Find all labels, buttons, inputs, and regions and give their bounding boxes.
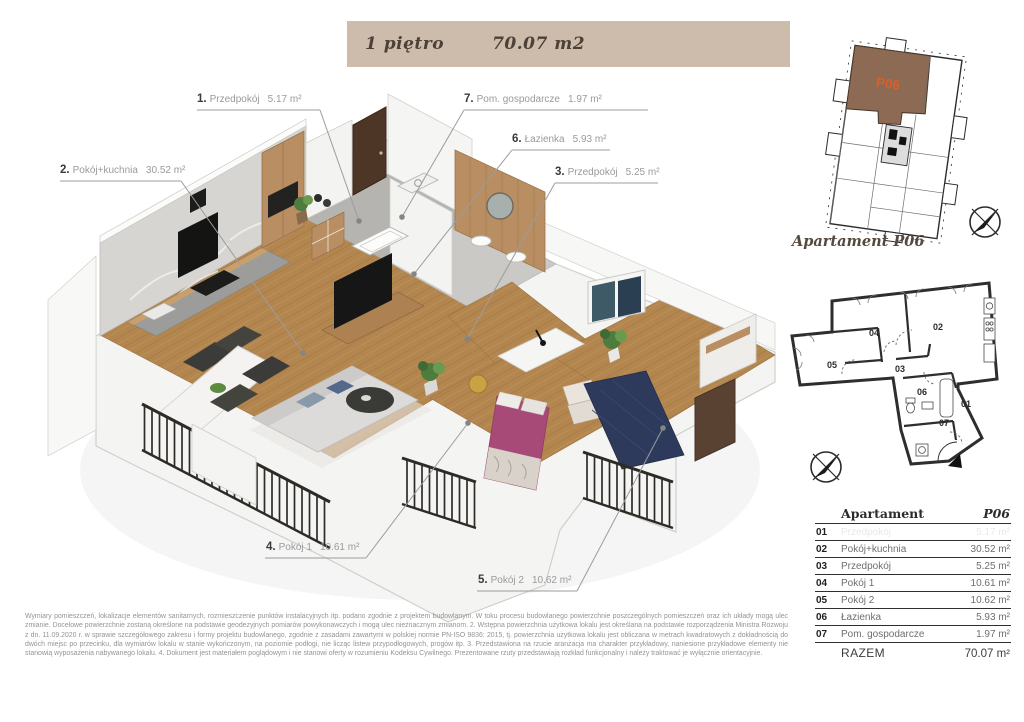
table-row: 04Pokój 110.61 m² (815, 574, 1011, 591)
building-locator: P06 (815, 32, 1000, 250)
room-label-01: 01 (961, 399, 971, 409)
total-area-label: 70.07 m2 (492, 34, 585, 54)
compass-top (970, 207, 1000, 237)
table-row: 03Przedpokój5.25 m² (815, 557, 1011, 574)
table-row: 07Pom. gospodarcze1.97 m² (815, 625, 1011, 642)
coffee-decor (361, 395, 371, 401)
table-title: Apartament (841, 506, 983, 521)
sink-2 (506, 252, 526, 262)
room-label-06: 06 (917, 387, 927, 397)
callout-1: 1.Przedpokój5.17 m² (197, 93, 302, 105)
desk-chair (469, 375, 487, 393)
compass-bottom (811, 452, 841, 482)
callout-3: 3.Przedpokój5.25 m² (555, 166, 660, 178)
title-bar: 1 piętro 70.07 m2 (347, 21, 790, 67)
callout-2: 2.Pokój+kuchnia30.52 m² (60, 164, 185, 176)
table-total-row: RAZEM 70.07 m² (815, 642, 1011, 662)
round-mirror (487, 193, 513, 219)
coffee-table (346, 387, 394, 413)
table-row: 01Przedpokój5.17 m² (815, 523, 1011, 540)
plan-2d: 01 02 03 04 05 06 07 (792, 283, 997, 482)
floor-label: 1 piętro (365, 34, 444, 54)
table-row: 06Łazienka5.93 m² (815, 608, 1011, 625)
room-label-04: 04 (869, 328, 879, 338)
coats (314, 194, 322, 202)
callout-7: 7.Pom. gospodarcze1.97 m² (464, 93, 602, 105)
sink-1 (471, 236, 491, 246)
table-row: 02Pokój+kuchnia30.52 m² (815, 540, 1011, 557)
callout-6: 6.Łazienka5.93 m² (512, 133, 607, 145)
legal-disclaimer: Wymiary pomieszczeń, lokalizacje element… (25, 612, 788, 658)
room-label-02: 02 (933, 322, 943, 332)
total-value: 70.07 m² (965, 648, 1010, 660)
room-label-05: 05 (827, 360, 837, 370)
callout-4: 4.Pokój 110.61 m² (266, 541, 359, 553)
table-unit: P06 (983, 506, 1010, 521)
table-header: Apartament P06 (815, 503, 1011, 523)
coats-2 (323, 199, 331, 207)
wall-art-left (592, 281, 615, 322)
room-label-03: 03 (895, 364, 905, 374)
kitchen-fixtures-2d (984, 298, 995, 362)
apartment-caption: Apartament P06 (792, 233, 924, 250)
table-row: 05Pokój 210.62 m² (815, 591, 1011, 608)
total-label: RAZEM (841, 646, 965, 660)
outer-wall-left (48, 256, 96, 456)
wall-art-right (618, 276, 641, 317)
room-label-07: 07 (939, 418, 949, 428)
callout-5: 5.Pokój 210.62 m² (478, 574, 571, 586)
room-table: Apartament P06 01Przedpokój5.17 m² 02Pok… (815, 503, 1011, 662)
door-handle (379, 151, 382, 154)
table-bowl (210, 383, 226, 393)
floorplan-sheet: P06 (0, 0, 1024, 722)
